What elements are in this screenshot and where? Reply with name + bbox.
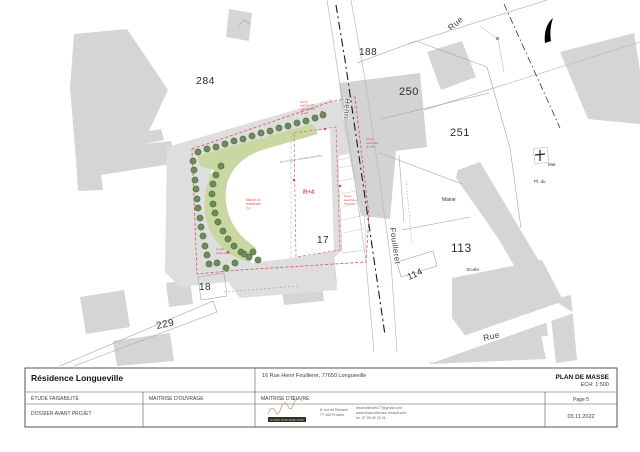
tree-icon	[214, 260, 220, 266]
tree-icon	[194, 196, 200, 202]
contact-address-2: 77 160 Provins	[320, 413, 344, 417]
tree-icon	[202, 243, 208, 249]
place-label: Mairie	[442, 197, 456, 203]
tree-icon	[276, 125, 282, 131]
tree-icon	[223, 265, 229, 271]
tree-icon	[191, 167, 197, 173]
parcel-label: 250	[399, 86, 419, 98]
architect-label: MAITRISE D'ŒUVRE	[261, 396, 310, 402]
contact-email: lesarchitectes77@gmail.com	[356, 406, 402, 410]
parcel-label: 18	[199, 282, 211, 293]
tree-icon	[258, 130, 264, 136]
tree-icon	[240, 136, 246, 142]
cross-icon	[533, 147, 549, 164]
tree-icon	[192, 177, 198, 183]
title-block: Résidence Longueville 16 Rue Henri Fouil…	[25, 368, 617, 427]
contact-website: www.lesarchitectes-renault.com	[356, 411, 407, 415]
tree-icon	[210, 201, 216, 207]
tree-icon	[204, 146, 210, 152]
tree-icon	[195, 205, 201, 211]
tree-icon	[197, 215, 203, 221]
tree-icon	[195, 149, 201, 155]
tree-icon	[220, 228, 226, 234]
tree-icon	[193, 186, 199, 192]
tree-icon	[206, 261, 212, 267]
tree-icon	[267, 128, 273, 134]
tree-icon	[250, 249, 256, 255]
tree-icon	[249, 133, 255, 139]
plan-sheet-svg: 2841882502511131141718229MairieEcolePl. …	[0, 0, 640, 452]
tree-icon	[294, 120, 300, 126]
tree-icon	[198, 224, 204, 230]
tree-icon	[213, 144, 219, 150]
project-address: 16 Rue Henri Fouilleret, 77650 Longuevil…	[262, 373, 366, 379]
drawing-title: PLAN DE MASSE	[556, 374, 610, 381]
tree-icon	[231, 138, 237, 144]
tree-icon	[222, 141, 228, 147]
tree-icon	[209, 191, 215, 197]
tree-icon	[232, 260, 238, 266]
tree-icon	[285, 123, 291, 129]
red-marker-icon	[293, 179, 295, 181]
drawing-sheet: 2841882502511131141718229MairieEcolePl. …	[0, 0, 640, 452]
parcel-label: 251	[450, 127, 470, 139]
tree-icon	[204, 252, 210, 258]
tree-icon	[218, 163, 224, 169]
parcel-label: 188	[359, 47, 377, 58]
place-label: Mar.	[548, 162, 557, 167]
place-label: Pl. du	[534, 179, 546, 184]
tree-icon	[231, 243, 237, 249]
tree-icon	[303, 118, 309, 124]
parcel-label: 284	[196, 75, 215, 87]
drawing-scale: ECH: 1:500	[581, 382, 609, 388]
tree-icon	[210, 181, 216, 187]
parcel-label: 113	[451, 241, 472, 255]
logo-text: STUDIO D'ARCHITECTURE	[270, 418, 303, 422]
tree-icon	[215, 219, 221, 225]
tree-icon	[255, 257, 261, 263]
tree-icon	[241, 251, 247, 257]
red-marker-icon	[339, 185, 341, 187]
drawing-date: 03.11.2022	[567, 414, 594, 420]
parcel-label: 17	[317, 235, 329, 246]
contact-phone: tel. 07 59 42 23 41	[356, 416, 386, 420]
tree-icon	[213, 172, 219, 178]
tree-icon	[212, 210, 218, 216]
phase-label: ÉTUDE FAISABILITÉ	[31, 395, 79, 402]
context-building	[226, 9, 252, 41]
tree-icon	[200, 233, 206, 239]
red-marker-icon	[321, 111, 323, 113]
context-building	[80, 290, 130, 334]
place-label: Ecole	[467, 267, 479, 273]
street-label: Henri	[342, 98, 352, 120]
project-name: Résidence Longueville	[31, 373, 123, 383]
red-marker-icon	[324, 128, 326, 130]
tree-icon	[312, 115, 318, 121]
owner-label: MAITRISE D'OUVRAGE	[149, 396, 204, 402]
stage-label: DOSSIER AVANT PROJET	[31, 411, 92, 417]
tree-icon	[190, 158, 196, 164]
contact-address-1: 8, rue de Renault	[320, 408, 348, 412]
tree-icon	[225, 236, 231, 242]
building-height-label: R+4	[303, 190, 315, 196]
page-number: Page 5	[573, 397, 589, 403]
